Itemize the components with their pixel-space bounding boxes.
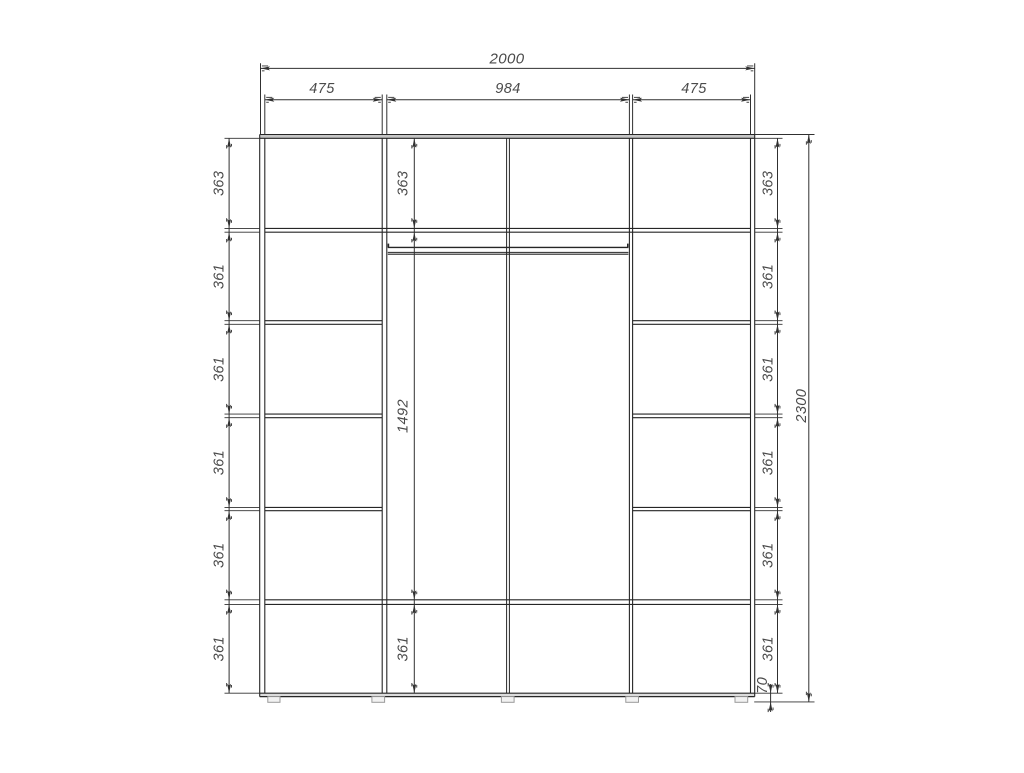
svg-text:70: 70 (755, 677, 771, 694)
svg-text:1492: 1492 (396, 399, 412, 433)
svg-text:361: 361 (761, 636, 777, 661)
svg-text:361: 361 (212, 356, 228, 381)
svg-text:363: 363 (212, 171, 228, 196)
svg-text:984: 984 (495, 81, 520, 97)
svg-text:361: 361 (761, 356, 777, 381)
svg-text:361: 361 (212, 636, 228, 661)
svg-text:361: 361 (761, 543, 777, 568)
svg-text:361: 361 (396, 636, 412, 661)
svg-text:361: 361 (212, 450, 228, 475)
svg-text:361: 361 (761, 450, 777, 475)
svg-text:2000: 2000 (489, 51, 525, 68)
svg-text:361: 361 (761, 264, 777, 289)
svg-text:475: 475 (309, 81, 335, 97)
svg-text:363: 363 (761, 171, 777, 196)
svg-text:475: 475 (681, 81, 707, 97)
svg-text:363: 363 (396, 171, 412, 196)
svg-text:2300: 2300 (794, 389, 810, 424)
svg-text:361: 361 (212, 543, 228, 568)
svg-text:361: 361 (212, 264, 228, 289)
